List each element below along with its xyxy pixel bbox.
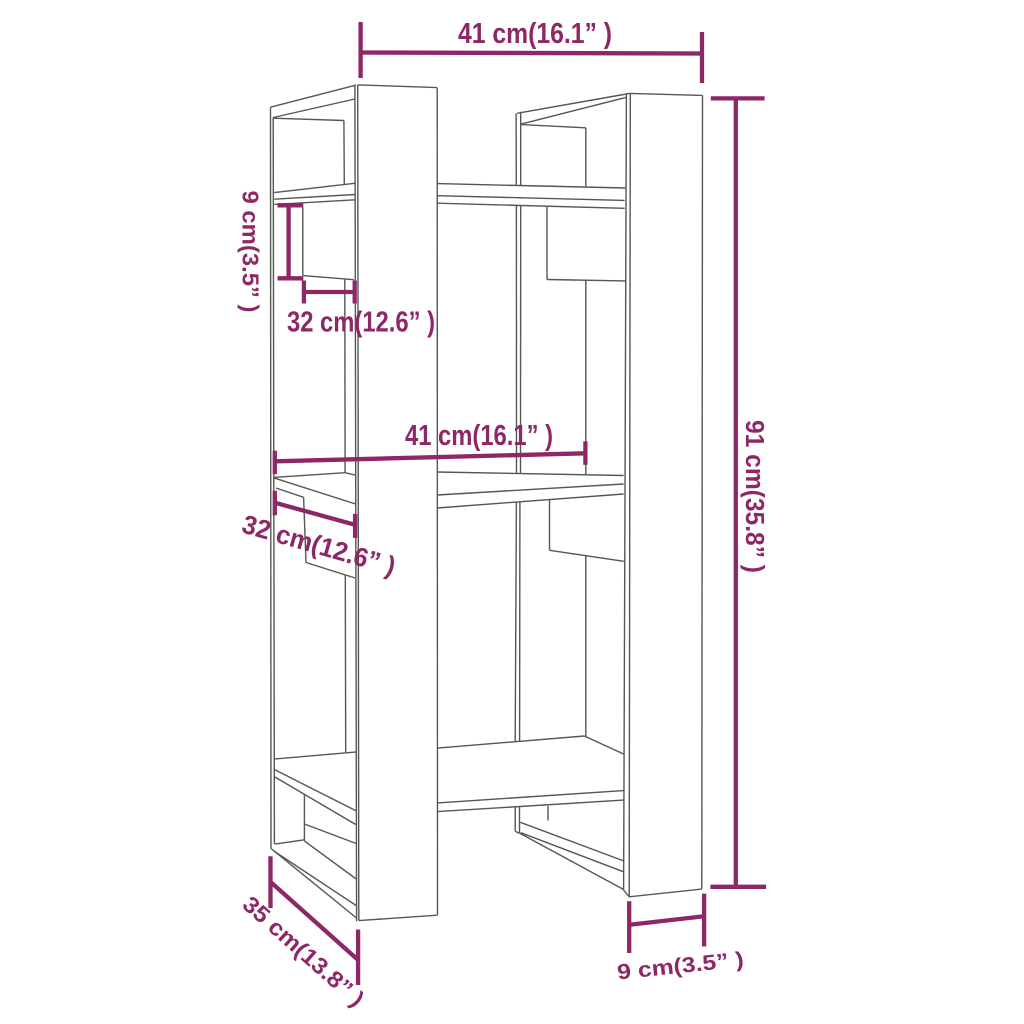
svg-text:9 cm(3.5” ): 9 cm(3.5” ) (238, 191, 264, 313)
svg-text:41 cm(16.1” ): 41 cm(16.1” ) (405, 419, 553, 451)
svg-text:41 cm(16.1” ): 41 cm(16.1” ) (458, 17, 612, 49)
svg-text:32 cm(12.6” ): 32 cm(12.6” ) (287, 306, 435, 338)
svg-text:91 cm(35.8” ): 91 cm(35.8” ) (740, 420, 768, 573)
